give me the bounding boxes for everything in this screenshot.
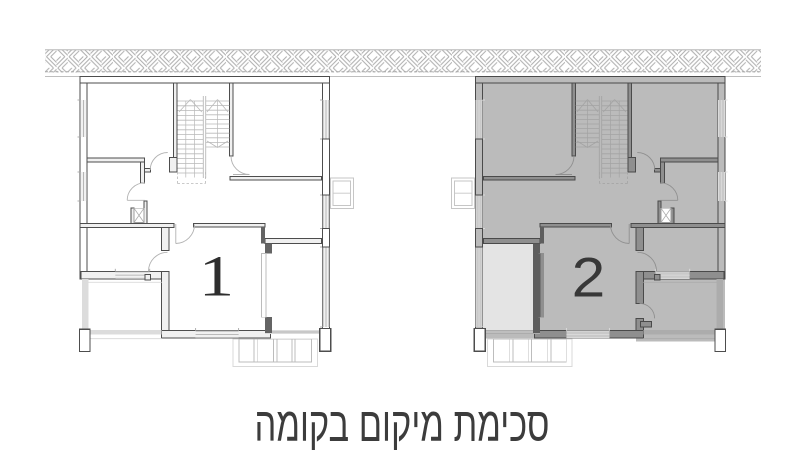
svg-text:2: 2 <box>572 247 606 309</box>
svg-text:סכימת מיקום בקומה: סכימת מיקום בקומה <box>255 399 550 452</box>
svg-text:1: 1 <box>199 244 234 309</box>
